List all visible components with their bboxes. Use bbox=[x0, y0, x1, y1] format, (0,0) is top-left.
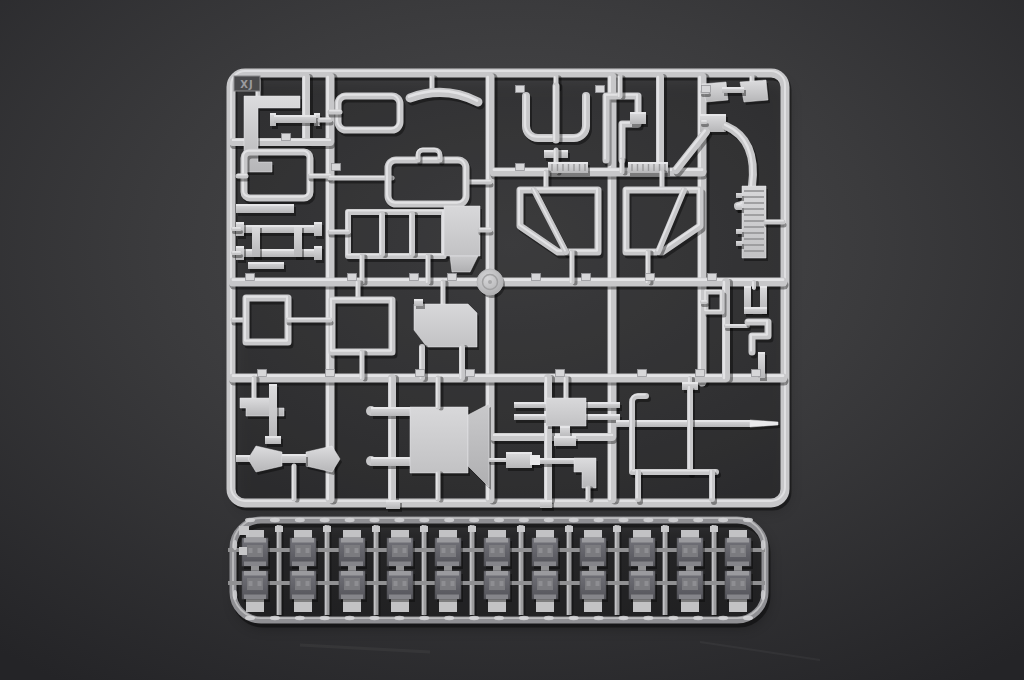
part-number-tab bbox=[556, 370, 565, 377]
part-number-tab bbox=[466, 370, 475, 377]
track-link bbox=[339, 538, 367, 569]
highlight-nub bbox=[320, 518, 330, 522]
link-peg bbox=[228, 581, 242, 585]
tread-strip-a bbox=[548, 162, 590, 176]
highlight-nub bbox=[519, 616, 529, 620]
part-number-tab bbox=[752, 370, 761, 377]
part-number-tab bbox=[702, 86, 711, 93]
link-connector bbox=[251, 566, 259, 571]
highlight-nub bbox=[594, 518, 604, 522]
rail-number-tab bbox=[661, 526, 669, 532]
highlight-nub bbox=[270, 616, 280, 620]
highlight-nub bbox=[519, 518, 529, 522]
highlight-nub bbox=[233, 540, 237, 550]
track-link bbox=[629, 571, 657, 602]
rail-number-tab bbox=[323, 526, 331, 532]
highlight-nub bbox=[594, 616, 604, 620]
highlight-nub bbox=[345, 616, 355, 620]
track-link bbox=[484, 571, 512, 602]
link-connector bbox=[638, 566, 646, 571]
link-peg bbox=[470, 581, 484, 585]
link-peg bbox=[325, 548, 339, 552]
highlight-nub bbox=[619, 616, 629, 620]
link-peg bbox=[663, 548, 677, 552]
part-number-tab bbox=[708, 274, 717, 281]
highlight-nub bbox=[345, 518, 355, 522]
part-number-tab bbox=[332, 164, 341, 171]
link-connector bbox=[444, 566, 452, 571]
highlight-nub bbox=[743, 518, 753, 522]
rail-number-tab bbox=[710, 526, 718, 532]
track-link bbox=[532, 538, 560, 569]
part-number-tab bbox=[416, 370, 425, 377]
highlight-nub bbox=[544, 616, 554, 620]
rail-number-tab bbox=[275, 526, 283, 532]
highlight-nub bbox=[233, 590, 237, 600]
part-number-tab bbox=[410, 274, 419, 281]
link-connector bbox=[299, 566, 307, 571]
rail-number-tab bbox=[517, 526, 525, 532]
highlight-nub bbox=[643, 616, 653, 620]
sprue-gate bbox=[343, 530, 361, 538]
track-link bbox=[725, 538, 753, 569]
link-peg bbox=[470, 548, 484, 552]
rail-number-tab bbox=[420, 526, 428, 532]
light-bar bbox=[236, 204, 296, 216]
part-number-tab bbox=[596, 86, 605, 93]
link-peg bbox=[566, 548, 580, 552]
track-link bbox=[387, 571, 415, 602]
highlight-nub bbox=[444, 518, 454, 522]
link-peg bbox=[421, 548, 435, 552]
link-peg bbox=[615, 581, 629, 585]
rail-number-tab bbox=[468, 526, 476, 532]
highlight-nub bbox=[245, 518, 255, 522]
highlight-nub bbox=[419, 616, 429, 620]
highlight-nub bbox=[370, 518, 380, 522]
sprue-gate bbox=[633, 530, 651, 538]
link-peg bbox=[711, 581, 725, 585]
link-peg bbox=[276, 548, 290, 552]
link-peg bbox=[518, 548, 532, 552]
link-peg bbox=[663, 581, 677, 585]
part-number-tab bbox=[582, 274, 591, 281]
sprue-letter-label: XJ bbox=[240, 79, 253, 90]
highlight-nub bbox=[270, 518, 280, 522]
track-link bbox=[435, 571, 463, 602]
track-link-sprue bbox=[228, 518, 768, 627]
axle-rod bbox=[616, 420, 780, 430]
track-link bbox=[677, 571, 705, 602]
sprue-gate bbox=[439, 530, 457, 538]
highlight-nub bbox=[668, 616, 678, 620]
link-peg bbox=[615, 548, 629, 552]
rail-number-tab bbox=[565, 526, 573, 532]
part-number-tab bbox=[646, 274, 655, 281]
track-corner-tab bbox=[239, 547, 247, 555]
highlight-nub bbox=[469, 518, 479, 522]
highlight-nub bbox=[394, 518, 404, 522]
sprue-gate bbox=[729, 530, 747, 538]
part-number-tab bbox=[532, 274, 541, 281]
rail-number-tab bbox=[372, 526, 380, 532]
highlight-nub bbox=[544, 518, 554, 522]
link-connector bbox=[541, 566, 549, 571]
sprue-gate bbox=[488, 530, 506, 538]
highlight-nub bbox=[761, 590, 765, 600]
track-link bbox=[725, 571, 753, 602]
track-link bbox=[242, 571, 270, 602]
highlight-nub bbox=[718, 518, 728, 522]
highlight-nub bbox=[743, 616, 753, 620]
link-connector bbox=[396, 566, 404, 571]
rail-number-tab bbox=[613, 526, 621, 532]
link-connector bbox=[734, 566, 742, 571]
part-number-tab bbox=[696, 370, 705, 377]
highlight-nub bbox=[469, 616, 479, 620]
highlight-nub bbox=[668, 518, 678, 522]
highlight-nub bbox=[444, 616, 454, 620]
link-peg bbox=[325, 581, 339, 585]
highlight-nub bbox=[370, 616, 380, 620]
link-peg bbox=[518, 581, 532, 585]
highlight-nub bbox=[693, 616, 703, 620]
link-peg bbox=[276, 581, 290, 585]
link-peg bbox=[373, 581, 387, 585]
highlight-nub bbox=[718, 616, 728, 620]
part-number-tab bbox=[348, 274, 357, 281]
part-number-tab bbox=[282, 134, 291, 141]
part-number-tab bbox=[246, 274, 255, 281]
track-corner-tab bbox=[239, 526, 249, 535]
sprue-gate bbox=[294, 530, 312, 538]
part-number-tab bbox=[638, 370, 647, 377]
main-sprue: XJ bbox=[231, 71, 789, 512]
link-peg bbox=[373, 548, 387, 552]
highlight-nub bbox=[494, 616, 504, 620]
track-link bbox=[484, 538, 512, 569]
link-connector bbox=[348, 566, 356, 571]
link-connector bbox=[493, 566, 501, 571]
highlight-nub bbox=[419, 518, 429, 522]
track-link bbox=[387, 538, 415, 569]
link-connector bbox=[589, 566, 597, 571]
highlight-nub bbox=[295, 616, 305, 620]
highlight-nub bbox=[394, 616, 404, 620]
track-link bbox=[435, 538, 463, 569]
part-number-tab bbox=[448, 274, 457, 281]
sprue-gate bbox=[681, 530, 699, 538]
sprue-gate bbox=[584, 530, 602, 538]
highlight-nub bbox=[761, 540, 765, 550]
highlight-nub bbox=[569, 616, 579, 620]
highlight-nub bbox=[320, 616, 330, 620]
part-number-tab bbox=[516, 86, 525, 93]
part-number-tab bbox=[516, 164, 525, 171]
highlight-nub bbox=[295, 518, 305, 522]
track-link bbox=[339, 571, 367, 602]
track-link bbox=[290, 571, 318, 602]
track-link bbox=[290, 538, 318, 569]
sprue-photo: XJ bbox=[0, 0, 1024, 680]
highlight-nub bbox=[643, 518, 653, 522]
link-peg bbox=[751, 581, 765, 585]
photo-stage: XJ bbox=[0, 0, 1024, 680]
track-link bbox=[629, 538, 657, 569]
highlight-nub bbox=[494, 518, 504, 522]
track-link bbox=[580, 571, 608, 602]
link-peg bbox=[566, 581, 580, 585]
track-link bbox=[677, 538, 705, 569]
link-peg bbox=[421, 581, 435, 585]
track-link bbox=[532, 571, 560, 602]
highlight-nub bbox=[245, 616, 255, 620]
link-connector bbox=[686, 566, 694, 571]
part-number-tab bbox=[258, 370, 267, 377]
link-peg bbox=[711, 548, 725, 552]
highlight-nub bbox=[693, 518, 703, 522]
part-number-tab bbox=[326, 370, 335, 377]
sprue-gate bbox=[536, 530, 554, 538]
sprue-corner-tag: XJ bbox=[234, 76, 260, 91]
highlight-nub bbox=[619, 518, 629, 522]
track-link bbox=[580, 538, 608, 569]
highlight-nub bbox=[569, 518, 579, 522]
sprue-gate bbox=[391, 530, 409, 538]
